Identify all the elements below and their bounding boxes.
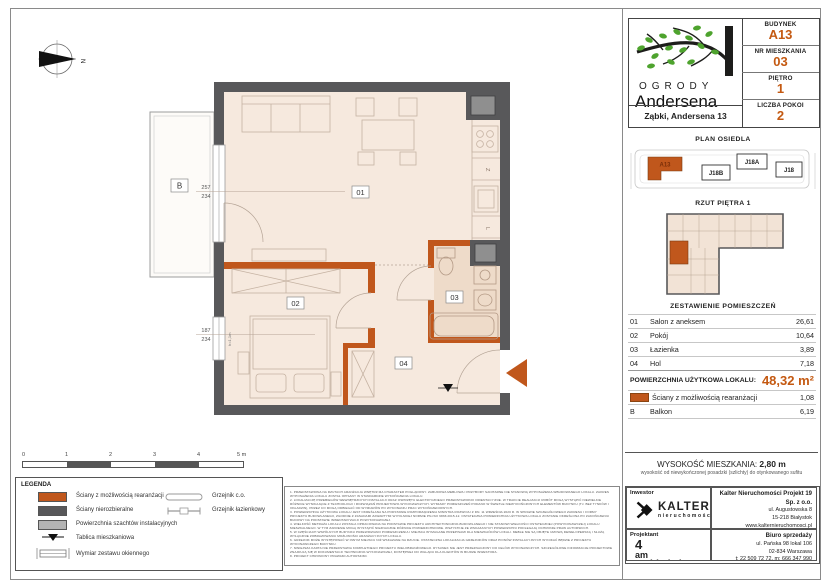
svg-text:J18A: J18A [745,160,760,166]
rooms-table-title: ZESTAWIENIE POMIESZCZEŃ [628,303,818,310]
apartment-floor-plan: N B [0,0,622,460]
unit-header-box: OGRODY Andersena Ząbki, Andersena 13 BUD… [628,18,820,128]
compass-icon: N [38,40,85,78]
table-row: 01 Salon z aneksem 26,61 [628,314,816,328]
legend-radiator-bath-icon [164,506,204,516]
unit-info-building: BUDYNEK A13 [742,19,819,46]
legend-shaft-swatch [38,520,67,530]
usable-area-value: 48,32 m² [762,373,816,388]
usable-area-row: POWIERZCHNIA UŻYTKOWA LOKALU: 48,32 m² [628,370,816,390]
table-row-walls: Ściany z możliwością rearanżacji 1,08 [628,390,816,404]
legend-info-board-icon [40,533,66,543]
orange-wall-swatch [630,393,649,402]
unit-info: BUDYNEK A13 NR MIESZKANIA 03 PIĘTRO 1 LI… [742,19,819,127]
room-label-04: 04 [399,359,407,368]
compass-north-label: N [79,59,85,63]
legend-orange-wall-swatch [38,492,67,502]
legend-title: LEGENDA [21,481,51,488]
table-row: 02 Pokój 10,64 [628,328,816,342]
site-plan-title: PLAN OSIEDLA [628,136,818,143]
unit-info-rooms: LICZBA POKOI 2 [742,100,819,126]
height-label: WYSOKOŚĆ MIESZKANIA: [657,460,757,469]
svg-text:h=1,1m: h=1,1m [227,332,232,346]
svg-text:234: 234 [201,337,210,343]
4am-architekci-logo: 4 am architekci [635,538,682,561]
company-cell: Kalter Nieruchomości Projekt 19 Sp. z o.… [711,487,817,529]
kalter-logo-icon [635,500,655,520]
unit-info-floor: PIĘTRO 1 [742,73,819,100]
room-label-01: 01 [356,188,364,197]
height-value: 2,80 m [759,459,785,469]
installation-shaft [471,96,495,115]
svg-text:J18B: J18B [709,171,724,177]
unit-info-apartment-no: NR MIESZKANIA 03 [742,46,819,73]
rooms-table: 01 Salon z aneksem 26,61 02 Pokój 10,64 … [628,314,816,419]
legend-box: LEGENDA Ściany z możliwością rearanżacji… [15,477,283,571]
legend-solid-wall-swatch [38,506,67,516]
balcony-label: B [177,182,182,191]
table-row-balcony: B Balkon 6,19 [628,404,816,419]
designer-cell: Projektant 4 am architekci [626,529,711,561]
scale-bar-segments [22,461,244,468]
table-row: 03 Łazienka 3,89 [628,342,816,356]
svg-text:257: 257 [201,185,210,191]
investor-cell: Inwestor KALTER nieruchomości [626,487,711,529]
kalter-logo: KALTER nieruchomości [635,500,711,520]
svg-text:A13: A13 [659,163,671,169]
building-a13 [648,157,682,180]
svg-text:234: 234 [201,194,210,200]
logo-line1: OGRODY [639,81,713,92]
apartment-height-box: WYSOKOŚĆ MIESZKANIA: 2,80 m wysokość od … [625,452,818,486]
fridge-label: L [484,227,490,230]
svg-text:187: 187 [201,328,210,334]
legend-window-dim-icon [36,547,70,561]
floor-overview-plan [661,209,789,299]
legend-radiator-co-icon [164,492,204,502]
sidebar-separator [622,8,623,579]
balcony-window [213,145,225,242]
contacts-grid: Inwestor KALTER nieruchomości Kalter Nie… [625,486,820,564]
site-plan-map: A13 J18B J18A J18 [628,145,818,197]
table-row: 04 Hol 7,18 [628,356,816,370]
svg-text:J18: J18 [784,168,795,174]
highlighted-unit [670,241,688,264]
scale-bar: 0 1 2 3 4 5 m [22,452,247,470]
floor-overview-title: RZUT PIĘTRA 1 [628,200,818,207]
sales-office-cell: Biuro sprzedaży ul. Pańska 98 lokal 106 … [711,529,817,561]
installation-shaft [475,244,496,262]
project-address: Ząbki, Andersena 13 [629,105,742,127]
room-label-02: 02 [291,299,299,308]
floor-plan-sheet: N B [0,0,830,587]
disclaimer-notes: 1. PRZEDSTAWIONA NA RZUTACH ARANŻACJA WN… [284,486,620,566]
bedroom-window [213,317,225,360]
developer-logo: OGRODY Andersena Ząbki, Andersena 13 [629,19,743,127]
tree-logo-icon [633,22,737,80]
room-label-03: 03 [450,293,458,302]
height-note: wysokość od niewykończonej posadzki (szl… [625,470,818,476]
